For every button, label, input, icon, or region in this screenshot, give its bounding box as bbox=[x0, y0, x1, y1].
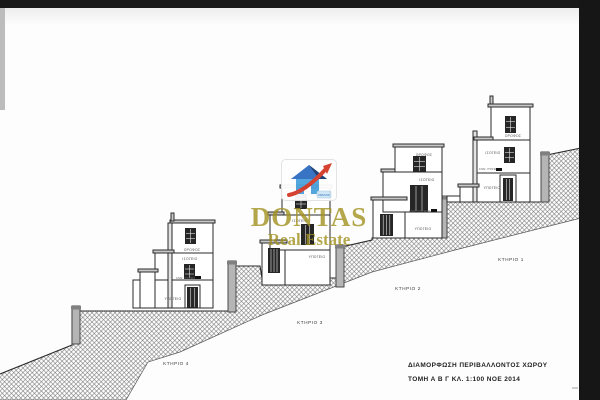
title-line-2: ΤΟΜΗ Α Β Γ ΚΛ. 1:100 ΝΟΕ 2014 bbox=[408, 376, 547, 383]
floor-label: ΥΠΟΓΕΙΟ bbox=[309, 255, 326, 259]
door bbox=[187, 287, 198, 308]
building-4-volume bbox=[155, 280, 213, 308]
logo-subtitle: Real Estate bbox=[250, 231, 368, 248]
building-1-volume bbox=[447, 196, 460, 202]
title-block: ΔΙΑΜΟΡΦΩΣΗ ΠΕΡΙΒΑΛΛΟΝΤΟΣ ΧΩΡΟΥ ΤΟΜΗ Α Β … bbox=[408, 362, 547, 383]
title-line-1: ΔΙΑΜΟΡΦΩΣΗ ΠΕΡΙΒΑΛΛΟΝΤΟΣ ΧΩΡΟΥ bbox=[408, 362, 547, 369]
building-4-slab bbox=[171, 213, 174, 221]
building-2-slab bbox=[381, 169, 395, 172]
building-4-slab bbox=[170, 220, 215, 223]
building-4: ΟΡΟΦΟΣΙΣΟΓΕΙΟΥΠΟΓΕΙΟΚΛΙΜ. ΥΠΟΓΕΙΟΥ bbox=[133, 213, 215, 308]
screenshot-root: ΟΡΟΦΟΣΙΣΟΓΕΙΟΥΠΟΓΕΙΟΚΛΙΜ. ΥΠΟΓΕΙΟΥΚΤΗΡΙΟ… bbox=[0, 0, 600, 400]
building-2-volume bbox=[405, 212, 442, 238]
floor-label: ΥΠΟΓΕΙΟ bbox=[165, 297, 182, 301]
building-2-slab bbox=[393, 144, 444, 147]
floor-label: ΥΠΟΓΕΙΟ bbox=[484, 186, 501, 190]
retaining-wall bbox=[228, 261, 236, 312]
dontas-logo-watermark: ΟΜΙΛΟΣ DONTAS Real Estate bbox=[250, 158, 368, 248]
building-4-slab bbox=[153, 250, 174, 253]
building-4-wall bbox=[168, 223, 172, 308]
building-2: ΟΡΟΦΟΣΙΣΟΓΕΙΟΥΠΟΓΕΙΟΚΛΙΜ. ΥΠΟΓΕΙΟΥ bbox=[371, 144, 444, 238]
logo-name: DONTAS bbox=[250, 204, 368, 231]
logo-house-icon: ΟΜΙΛΟΣ bbox=[280, 158, 338, 202]
building-label: ΚΤΗΡΙΟ 2 bbox=[395, 286, 421, 291]
drawing-sheet: ΟΡΟΦΟΣΙΣΟΓΕΙΟΥΠΟΓΕΙΟΚΛΙΜ. ΥΠΟΓΕΙΟΥΚΤΗΡΙΟ… bbox=[0, 0, 600, 400]
floor-label: ΟΡΟΦΟΣ bbox=[416, 153, 432, 157]
level-annotation: ΚΛΙΜ. ΥΠΟΓΕΙΟΥ bbox=[176, 276, 197, 280]
scrollbar-remnant bbox=[0, 8, 5, 110]
retaining-wall bbox=[72, 306, 80, 344]
building-4-slab bbox=[138, 269, 158, 272]
building-1-slab bbox=[474, 137, 493, 140]
window-right-bar bbox=[579, 0, 600, 400]
building-1-slab bbox=[490, 96, 493, 104]
retaining-wall-cap bbox=[540, 152, 550, 156]
retaining-wall-cap bbox=[71, 306, 81, 310]
floor-label: ΥΠΟΓΕΙΟ bbox=[415, 227, 432, 231]
level-marker bbox=[496, 168, 502, 171]
floor-label: ΙΣΟΓΕΙΟ bbox=[419, 178, 434, 182]
door bbox=[503, 178, 513, 201]
retaining-wall bbox=[541, 152, 549, 202]
building-1: ΟΡΟΦΟΣΙΣΟΓΕΙΟΥΠΟΓΕΙΟΚΛΙΜ. ΥΠΟΓΕΙΟΥ bbox=[447, 96, 533, 202]
retaining-wall bbox=[336, 245, 344, 287]
level-marker bbox=[195, 276, 201, 279]
logo-tag-text: ΟΜΙΛΟΣ bbox=[318, 193, 330, 197]
building-2-slab bbox=[371, 197, 407, 200]
floor-label: ΙΣΟΓΕΙΟ bbox=[485, 151, 500, 155]
floor-label: ΙΣΟΓΕΙΟ bbox=[182, 257, 197, 261]
floor-label: ΟΡΟΦΟΣ bbox=[505, 134, 521, 138]
building-label: ΚΤΗΡΙΟ 1 bbox=[498, 257, 524, 262]
floor-label: ΟΡΟΦΟΣ bbox=[184, 248, 200, 252]
building-label: ΚΤΗΡΙΟ 4 bbox=[163, 361, 189, 366]
retaining-wall-cap bbox=[227, 261, 237, 265]
level-marker bbox=[431, 209, 437, 212]
building-1-wall bbox=[473, 131, 477, 202]
level-annotation: ΚΛΙΜ. ΥΠΟΓΕΙΟΥ bbox=[409, 209, 430, 213]
door bbox=[410, 185, 428, 212]
building-label: ΚΤΗΡΙΟ 3 bbox=[297, 320, 323, 325]
building-4-volume bbox=[140, 272, 156, 308]
window-top-bar bbox=[0, 0, 600, 8]
building-1-slab bbox=[458, 184, 479, 187]
building-1-slab bbox=[488, 104, 533, 107]
